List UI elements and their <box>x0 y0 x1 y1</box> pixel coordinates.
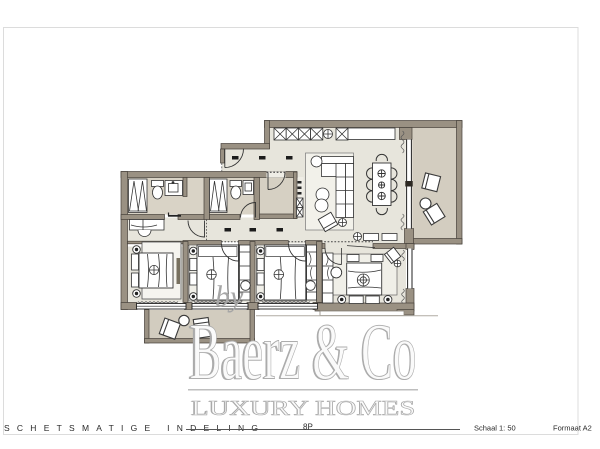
svg-text:LUXURY HOMES: LUXURY HOMES <box>191 396 415 420</box>
svg-text:8P: 8P <box>303 423 313 432</box>
svg-text:Baerz & Co: Baerz & Co <box>190 307 417 397</box>
svg-text:Schaal 1: 50: Schaal 1: 50 <box>474 424 516 433</box>
svg-text:Formaat A2: Formaat A2 <box>553 424 592 433</box>
